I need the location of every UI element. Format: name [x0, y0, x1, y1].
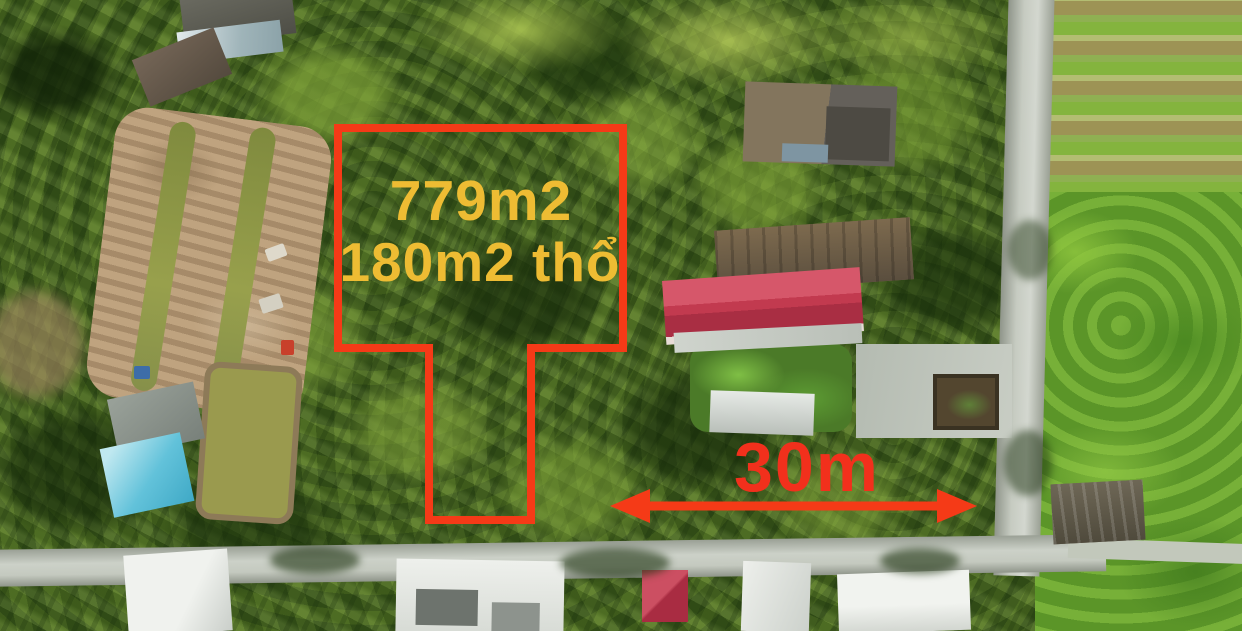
gray-shed: [709, 390, 814, 436]
tree-shadow: [1008, 220, 1052, 280]
hut-right-of-road: [1050, 480, 1145, 545]
water-channel: [129, 120, 197, 393]
tree-shadow: [270, 546, 360, 574]
house-topright-awning: [782, 143, 829, 163]
pond: [195, 361, 304, 525]
house-topright-section: [825, 107, 891, 162]
aerial-photo: 779m2 180m2 thổ 30m: [0, 0, 1242, 631]
blue-tarp: [134, 366, 150, 379]
roof-panel: [416, 589, 479, 626]
house-below-road-4: [837, 570, 971, 631]
house-below-road-1: [123, 548, 232, 631]
garden-bed: [933, 374, 999, 430]
tree-shadow: [1004, 430, 1052, 496]
water-channel: [209, 126, 277, 399]
tree-shadow: [560, 548, 670, 578]
house-below-road-2: [395, 559, 564, 631]
banana-grove: [400, 0, 1010, 143]
red-hut: [642, 570, 688, 622]
red-object: [281, 340, 294, 355]
roof-panel: [491, 602, 540, 631]
tree-shadow: [880, 548, 960, 574]
house-below-road-3: [741, 561, 811, 631]
